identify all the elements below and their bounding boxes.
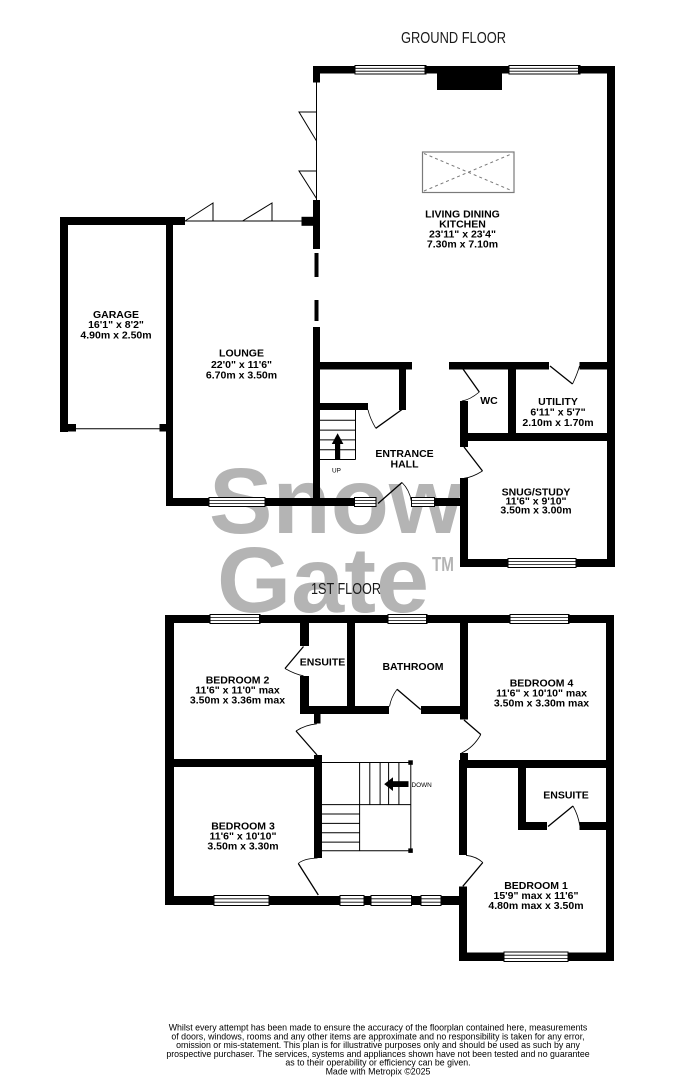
- svg-text:1ST FLOOR: 1ST FLOOR: [311, 581, 381, 598]
- svg-text:HALL: HALL: [391, 459, 420, 471]
- svg-text:LOUNGE: LOUNGE: [219, 348, 264, 360]
- svg-text:UP: UP: [332, 468, 341, 475]
- svg-text:3.50m x 3.30m max: 3.50m x 3.30m max: [494, 698, 589, 710]
- svg-text:4.80m max x 3.50m: 4.80m max x 3.50m: [488, 900, 583, 912]
- svg-text:2.10m x 1.70m: 2.10m x 1.70m: [522, 417, 593, 429]
- svg-text:TM: TM: [432, 554, 454, 576]
- svg-text:ENSUITE: ENSUITE: [543, 790, 589, 802]
- svg-text:7.30m x 7.10m: 7.30m x 7.10m: [427, 239, 498, 251]
- svg-text:3.50m x 3.36m max: 3.50m x 3.36m max: [190, 695, 285, 707]
- svg-text:6.70m x 3.50m: 6.70m x 3.50m: [206, 370, 277, 382]
- svg-text:DOWN: DOWN: [412, 782, 433, 789]
- svg-text:ENSUITE: ENSUITE: [300, 657, 346, 669]
- svg-text:4.90m x 2.50m: 4.90m x 2.50m: [80, 330, 151, 342]
- svg-text:3.50m x 3.00m: 3.50m x 3.00m: [500, 505, 571, 517]
- svg-text:Made with Metropix ©2025: Made with Metropix ©2025: [326, 1067, 431, 1077]
- svg-text:3.50m x 3.30m: 3.50m x 3.30m: [207, 841, 278, 853]
- svg-text:BATHROOM: BATHROOM: [382, 661, 443, 673]
- svg-text:WC: WC: [480, 395, 498, 407]
- svg-text:GROUND FLOOR: GROUND FLOOR: [401, 30, 506, 47]
